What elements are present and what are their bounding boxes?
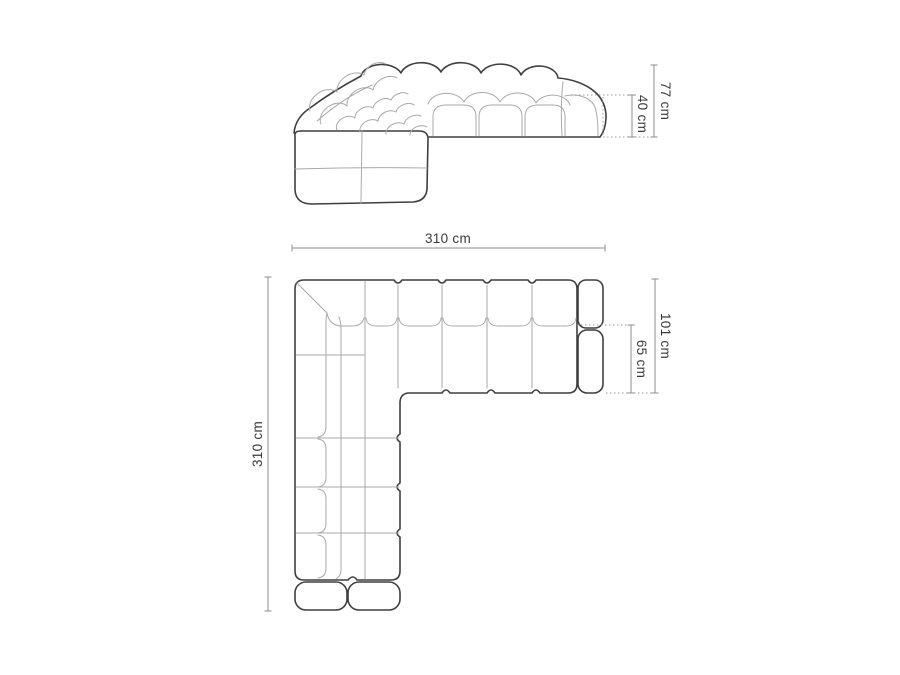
dimension-label-total-width: 310 cm [425, 231, 471, 246]
dimension-label-total-depth: 101 cm [658, 313, 673, 359]
corner-backrest-bubbles [309, 63, 397, 124]
back-cushion-bumps [428, 92, 570, 105]
dimension-line [629, 95, 636, 137]
dimension-seat-height [629, 95, 636, 137]
dimension-seat-depth [628, 325, 635, 393]
diagram-page: 77 cm 40 cm [0, 0, 900, 675]
armrest-module-bottom [578, 330, 603, 393]
plan-view [295, 280, 603, 610]
elevation-view [294, 63, 606, 204]
dimension-line [652, 279, 659, 393]
dimension-label-total-height: 77 cm [658, 82, 673, 120]
dimension-total-height [651, 65, 658, 137]
dimension-total-depth [652, 279, 659, 393]
back-cushion-scallops [327, 313, 576, 326]
front-module-seams [295, 131, 427, 203]
side-cushion-scallops [318, 313, 341, 579]
dimension-label-total-length: 310 cm [250, 421, 265, 467]
dimension-label-seat-depth: 65 cm [634, 340, 649, 378]
dimension-line [628, 325, 635, 393]
dimension-line [265, 277, 272, 611]
dimension-label-seat-height: 40 cm [635, 95, 650, 133]
corner-seat-tufting [336, 93, 427, 135]
end-module-left [295, 582, 347, 610]
dimension-line [651, 65, 658, 137]
sofa-back-silhouette [294, 63, 606, 137]
plan-dimensions: 310 cm 310 cm 101 cm 65 cm [250, 231, 673, 611]
sofa-dimension-diagram: 77 cm 40 cm [0, 0, 900, 675]
dimension-total-length [265, 277, 272, 611]
armrest-module-top [578, 280, 603, 328]
elevation-dimensions: 77 cm 40 cm [571, 65, 673, 137]
seat-cushions [433, 105, 565, 136]
end-module-right [348, 582, 400, 610]
